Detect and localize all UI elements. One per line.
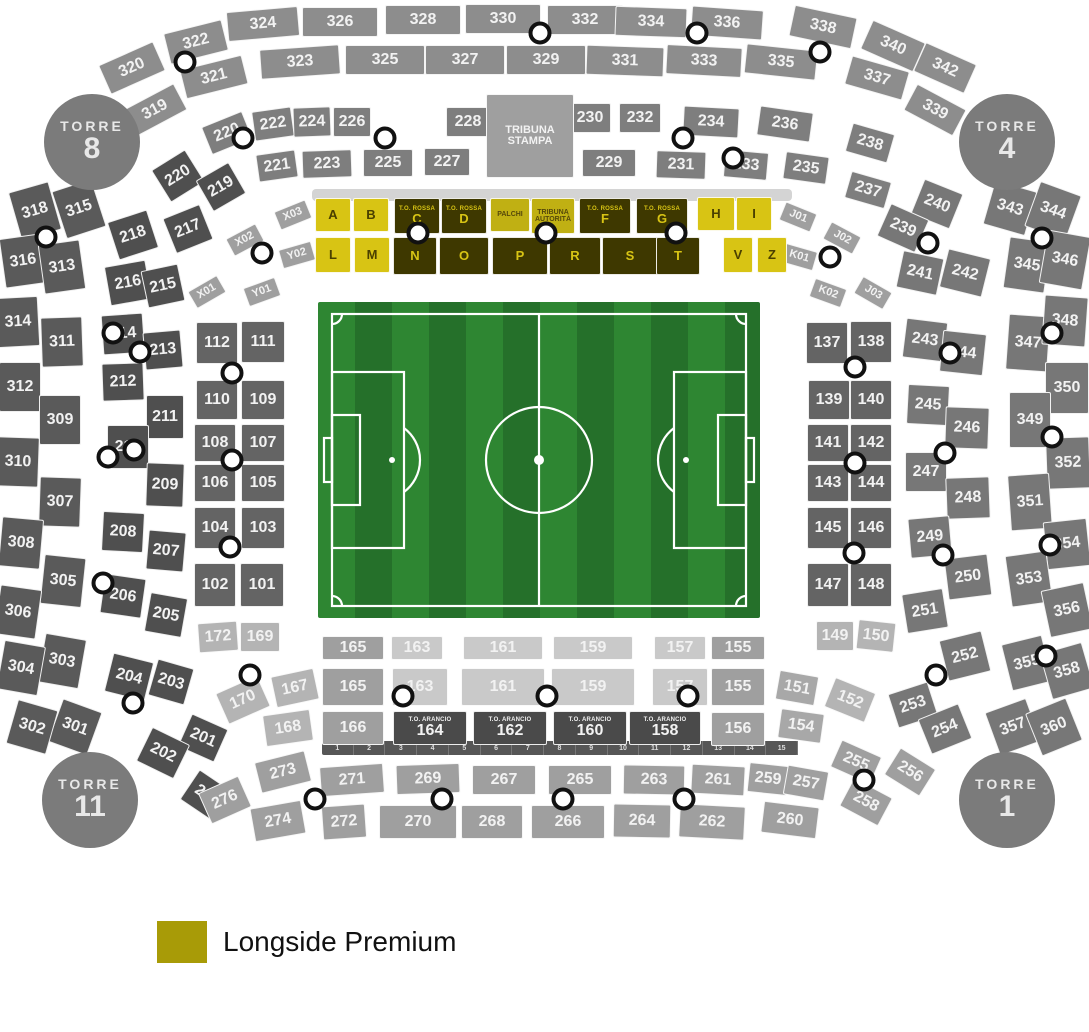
section-f[interactable]: T.O. ROSSAF: [579, 198, 631, 234]
section-161[interactable]: 161: [463, 636, 543, 660]
section-label: 228: [455, 114, 482, 130]
section-232[interactable]: 232: [619, 103, 661, 133]
vomitory-marker: [552, 788, 575, 811]
section-212[interactable]: 212: [101, 362, 144, 401]
section-label: 109: [250, 392, 277, 408]
section-148[interactable]: 148: [850, 563, 892, 607]
section-label: 205: [151, 605, 180, 626]
section-label: 208: [109, 523, 137, 541]
vomitory-marker: [665, 222, 688, 245]
section-label: 227: [434, 154, 461, 170]
section-label: 252: [950, 645, 980, 667]
section-261[interactable]: 261: [690, 764, 745, 797]
section-159[interactable]: 159: [553, 636, 633, 660]
section-label: 360: [1039, 714, 1070, 739]
section-label: 311: [49, 333, 75, 350]
vomitory-marker: [129, 341, 152, 364]
section-312[interactable]: 312: [0, 362, 41, 412]
section-161[interactable]: 161: [461, 668, 545, 706]
section-110[interactable]: 110: [196, 380, 238, 420]
section-151[interactable]: 151: [775, 670, 820, 706]
section-label: 207: [152, 542, 180, 561]
section-172[interactable]: 172: [197, 621, 239, 654]
section-105[interactable]: 105: [241, 464, 285, 502]
section-label: 162: [497, 723, 524, 739]
section-label: 147: [815, 577, 842, 593]
vomitory-marker: [917, 232, 940, 255]
section-107[interactable]: 107: [241, 424, 285, 462]
football-pitch: [318, 302, 760, 618]
section-label: 347: [1014, 334, 1042, 352]
section-223[interactable]: 223: [302, 149, 353, 179]
section-o[interactable]: O: [439, 237, 489, 275]
section-label: 260: [776, 810, 804, 829]
section-163[interactable]: 163: [391, 636, 443, 660]
section-label: 262: [698, 813, 726, 831]
vomitory-marker: [932, 544, 955, 567]
section-217[interactable]: 217: [162, 204, 213, 254]
section-label: 346: [1050, 250, 1079, 271]
section-label: 110: [204, 392, 230, 408]
section-215[interactable]: 215: [140, 263, 185, 308]
section-label: 345: [1013, 255, 1042, 275]
section-label: S: [626, 249, 635, 262]
section-360[interactable]: 360: [1025, 697, 1083, 756]
section-241[interactable]: 241: [896, 250, 945, 296]
section-143[interactable]: 143: [807, 464, 849, 502]
section-266[interactable]: 266: [531, 805, 605, 839]
section-label: 158: [652, 723, 679, 739]
legend-color-swatch: [157, 921, 207, 963]
section-label: 206: [109, 586, 138, 606]
section-264[interactable]: 264: [613, 803, 672, 838]
section-label: 349: [1017, 412, 1044, 428]
section-d[interactable]: T.O. ROSSAD: [441, 198, 487, 234]
section-label: 344: [1038, 199, 1069, 223]
section-label: 327: [452, 52, 479, 68]
section-label: K01: [788, 249, 810, 265]
section-label: 220: [162, 162, 193, 190]
section-301[interactable]: 301: [47, 698, 102, 756]
section-156[interactable]: 156: [711, 712, 765, 746]
section-v[interactable]: V: [723, 237, 753, 273]
section-314[interactable]: 314: [0, 296, 40, 348]
section-label: 256: [894, 758, 925, 786]
section-310[interactable]: 310: [0, 436, 40, 487]
section-165[interactable]: 165: [322, 636, 384, 660]
section-303[interactable]: 303: [37, 633, 87, 690]
section-309[interactable]: 309: [39, 395, 81, 445]
section-145[interactable]: 145: [807, 507, 849, 549]
section-label: 265: [567, 772, 594, 788]
section-label: 172: [204, 628, 232, 646]
section-112[interactable]: 112: [196, 322, 238, 364]
section-238[interactable]: 238: [845, 123, 896, 164]
vomitory-marker: [819, 246, 842, 269]
section-b[interactable]: B: [353, 198, 389, 232]
section-label: 335: [767, 52, 795, 71]
section-label: 234: [697, 113, 725, 131]
section-label: 313: [48, 257, 77, 277]
section-label: 270: [405, 814, 432, 830]
section-111[interactable]: 111: [241, 321, 285, 363]
section-157[interactable]: 157: [654, 636, 706, 660]
vomitory-marker: [844, 356, 867, 379]
vomitory-marker: [809, 41, 832, 64]
section-242[interactable]: 242: [939, 248, 991, 297]
section-237[interactable]: 237: [844, 171, 892, 209]
section-label: 251: [911, 601, 940, 621]
section-label: 352: [1054, 454, 1081, 471]
vomitory-marker: [239, 664, 262, 687]
section-l[interactable]: L: [315, 237, 351, 273]
section-label: T: [674, 249, 682, 262]
section-323[interactable]: 323: [259, 44, 341, 80]
section-160[interactable]: T.O. ARANCIO160: [553, 711, 627, 745]
tower-number: 11: [74, 790, 106, 824]
section-label: 315: [64, 197, 94, 221]
section-label: 339: [919, 97, 950, 124]
section-label: 243: [911, 330, 939, 349]
section-label: 303: [47, 651, 76, 672]
section-150[interactable]: 150: [856, 619, 897, 653]
section-329[interactable]: 329: [506, 45, 586, 75]
section-236[interactable]: 236: [756, 105, 814, 142]
section-label: 224: [298, 113, 325, 130]
section-139[interactable]: 139: [808, 380, 850, 420]
section-109[interactable]: 109: [241, 380, 285, 420]
section-272[interactable]: 272: [321, 804, 367, 841]
section-label: 238: [855, 131, 885, 154]
section-label: 148: [858, 577, 885, 593]
section-334[interactable]: 334: [614, 6, 687, 38]
section-label: 338: [808, 16, 838, 38]
section-label: 261: [704, 771, 732, 789]
section-label: 248: [954, 489, 981, 506]
section-label: 235: [792, 158, 821, 178]
section-label: 334: [637, 13, 664, 30]
section-167[interactable]: 167: [270, 668, 320, 708]
section-label: 333: [690, 52, 718, 70]
section-165[interactable]: 165: [322, 668, 384, 706]
section-169[interactable]: 169: [240, 622, 280, 652]
section-218[interactable]: 218: [107, 209, 159, 260]
section-154[interactable]: 154: [777, 708, 825, 744]
section-305[interactable]: 305: [40, 554, 87, 608]
section-label: 329: [533, 52, 560, 68]
section-label: 106: [202, 475, 229, 491]
section-label: 271: [338, 771, 366, 789]
section-339[interactable]: 339: [903, 84, 967, 137]
section-149[interactable]: 149: [816, 621, 854, 651]
section-101[interactable]: 101: [240, 563, 284, 607]
section-label: 325: [372, 52, 399, 68]
vomitory-marker: [853, 769, 876, 792]
section-label: 140: [858, 392, 885, 408]
section-label: Z: [768, 248, 776, 261]
section-h[interactable]: H: [697, 197, 735, 231]
section-label: 236: [771, 114, 800, 134]
section-208[interactable]: 208: [101, 511, 145, 553]
section-label: 223: [313, 155, 340, 172]
section-256[interactable]: 256: [884, 747, 937, 796]
section-label: 305: [49, 571, 77, 590]
vomitory-marker: [1039, 534, 1062, 557]
section-label: K02: [817, 284, 840, 301]
section-328[interactable]: 328: [385, 5, 461, 35]
tower-4: TORRE4: [959, 94, 1055, 190]
section-label: 326: [327, 14, 354, 30]
section-label: 343: [995, 196, 1025, 219]
section-137[interactable]: 137: [806, 322, 848, 364]
section-label: 250: [954, 567, 982, 586]
section-155[interactable]: 155: [711, 636, 765, 660]
section-140[interactable]: 140: [850, 380, 892, 420]
section-x03[interactable]: X03: [273, 199, 312, 230]
section-label: 321: [199, 66, 229, 88]
section-248[interactable]: 248: [945, 476, 990, 520]
section-267[interactable]: 267: [472, 765, 536, 795]
section-251[interactable]: 251: [901, 588, 949, 634]
section-211[interactable]: 211: [146, 395, 184, 439]
section-label: 166: [340, 720, 367, 736]
section-label: 239: [887, 215, 918, 241]
section-label: 245: [914, 396, 942, 414]
section-168[interactable]: 168: [262, 709, 314, 747]
section-label: 145: [815, 520, 842, 536]
vomitory-marker: [304, 788, 327, 811]
section-152[interactable]: 152: [824, 677, 877, 723]
section-141[interactable]: 141: [807, 424, 849, 462]
stadium-seat-map: 123456789101112131415 Longside Premium 3…: [0, 0, 1089, 1032]
section-label: 164: [417, 723, 444, 739]
section-231[interactable]: 231: [656, 150, 707, 180]
section-y01[interactable]: Y01: [243, 277, 282, 307]
section-label: P: [516, 249, 525, 262]
section-306[interactable]: 306: [0, 584, 42, 639]
section-320[interactable]: 320: [98, 41, 166, 95]
section-label: 137: [814, 335, 841, 351]
section-label: 308: [7, 534, 35, 553]
section-label: 274: [263, 811, 292, 832]
section-label: J03: [862, 284, 884, 303]
section-label: 324: [249, 15, 277, 34]
section-j03[interactable]: J03: [853, 276, 892, 310]
section-274[interactable]: 274: [249, 800, 306, 843]
section-label: 112: [204, 335, 230, 351]
section-label: TRIBUNA: [537, 209, 569, 216]
section-324[interactable]: 324: [226, 6, 300, 42]
section-332[interactable]: 332: [547, 5, 623, 35]
section-label: 143: [815, 475, 842, 491]
section-label: 211: [152, 409, 178, 425]
section-z[interactable]: Z: [757, 237, 787, 273]
section-label: 204: [114, 666, 144, 688]
vomitory-marker: [925, 664, 948, 687]
section-label: 356: [1052, 599, 1082, 621]
section-147[interactable]: 147: [807, 563, 849, 607]
section-label: 217: [173, 216, 204, 241]
vomitory-marker: [221, 362, 244, 385]
vomitory-marker: [536, 685, 559, 708]
section-j01[interactable]: J01: [778, 201, 817, 232]
section-label: 342: [929, 55, 960, 81]
section-label: 246: [953, 419, 980, 436]
section-label: 160: [577, 723, 604, 739]
section-label: 268: [479, 814, 506, 830]
tower-number: 8: [84, 132, 101, 166]
section-label: 168: [274, 718, 303, 738]
section-label: 201: [187, 725, 218, 751]
section-label: 247: [913, 464, 940, 480]
section-label: 161: [490, 679, 517, 695]
vomitory-marker: [92, 572, 115, 595]
section-label: 231: [667, 156, 694, 173]
section-350[interactable]: 350: [1045, 362, 1089, 414]
section-s[interactable]: S: [602, 237, 658, 275]
section-327[interactable]: 327: [425, 45, 505, 75]
section-335[interactable]: 335: [744, 43, 819, 80]
section-a[interactable]: A: [315, 198, 351, 232]
section-245[interactable]: 245: [906, 384, 950, 426]
section-222[interactable]: 222: [251, 106, 295, 141]
section-label: 213: [149, 341, 177, 360]
section-label: 203: [156, 670, 186, 693]
section-label: F: [601, 212, 609, 225]
section-159[interactable]: 159: [551, 668, 635, 706]
vomitory-marker: [221, 449, 244, 472]
section-r[interactable]: R: [549, 237, 601, 275]
section-label: 103: [250, 520, 277, 536]
section-311[interactable]: 311: [40, 316, 84, 367]
section-m[interactable]: M: [354, 237, 390, 273]
section-207[interactable]: 207: [145, 529, 186, 572]
section-273[interactable]: 273: [254, 750, 312, 794]
section-325[interactable]: 325: [345, 45, 425, 75]
section-257[interactable]: 257: [783, 765, 830, 802]
section-label: 163: [404, 640, 431, 656]
section-x01[interactable]: X01: [187, 275, 226, 309]
section-102[interactable]: 102: [194, 563, 236, 607]
section-label: 350: [1054, 380, 1081, 396]
section-158[interactable]: T.O. ARANCIO158: [629, 711, 701, 745]
section-162[interactable]: T.O. ARANCIO162: [473, 711, 547, 745]
section-label: 155: [725, 679, 752, 695]
vomitory-marker: [431, 788, 454, 811]
section-103[interactable]: 103: [241, 507, 285, 549]
section-308[interactable]: 308: [0, 516, 44, 569]
section-228[interactable]: 228: [446, 107, 490, 137]
section-155[interactable]: 155: [711, 668, 765, 706]
section-269[interactable]: 269: [395, 763, 460, 795]
section-label: 149: [822, 628, 849, 644]
vomitory-marker: [677, 685, 700, 708]
section-203[interactable]: 203: [147, 658, 194, 705]
section-220[interactable]: 220: [151, 149, 205, 202]
section-label: 269: [414, 770, 441, 787]
section-label-line2: STAMPA: [508, 136, 553, 147]
section-label: 323: [286, 53, 314, 71]
section-label: 111: [251, 334, 276, 350]
section-label: 302: [17, 715, 47, 738]
vomitory-marker: [1035, 645, 1058, 668]
section-label: 332: [572, 12, 599, 28]
section-label: 259: [754, 769, 782, 788]
section-y02[interactable]: Y02: [278, 241, 316, 270]
section-230[interactable]: 230: [569, 103, 611, 133]
vomitory-marker: [843, 542, 866, 565]
section-227[interactable]: 227: [424, 148, 470, 176]
section-326[interactable]: 326: [302, 7, 378, 37]
section-219[interactable]: 219: [196, 162, 247, 212]
section-209[interactable]: 209: [145, 462, 185, 507]
section-label: 165: [340, 679, 367, 695]
section-221[interactable]: 221: [255, 149, 299, 182]
section-label: 304: [6, 658, 35, 679]
section-label: 242: [950, 262, 980, 284]
section-label: 161: [490, 640, 517, 656]
section-225[interactable]: 225: [363, 149, 413, 177]
section-palchi[interactable]: PALCHI: [490, 198, 530, 232]
section-268[interactable]: 268: [461, 805, 523, 839]
legend: Longside Premium: [157, 921, 456, 963]
vomitory-marker: [374, 127, 397, 150]
section-label: 257: [791, 773, 820, 794]
section-label: 272: [330, 813, 358, 831]
section-label: 331: [611, 52, 638, 69]
section-270[interactable]: 270: [379, 805, 457, 839]
section-164[interactable]: T.O. ARANCIO164: [393, 711, 467, 745]
section-k02[interactable]: K02: [809, 278, 848, 308]
seat-block-number: 15: [766, 741, 798, 755]
section-label: 102: [202, 577, 229, 593]
section-label: 263: [641, 772, 668, 789]
section-label: A: [328, 208, 337, 221]
vomitory-marker: [174, 51, 197, 74]
section-333[interactable]: 333: [665, 44, 742, 78]
section-166[interactable]: 166: [322, 711, 384, 745]
vomitory-marker: [97, 446, 120, 469]
section-235[interactable]: 235: [782, 151, 829, 185]
section-271[interactable]: 271: [319, 763, 385, 797]
section-205[interactable]: 205: [144, 592, 188, 638]
section-label: 319: [139, 97, 170, 124]
section-i[interactable]: I: [736, 197, 772, 231]
section-label: 328: [410, 12, 437, 28]
section-tribuna[interactable]: TRIBUNASTAMPA: [486, 94, 574, 178]
section-224[interactable]: 224: [292, 106, 331, 137]
vomitory-marker: [686, 22, 709, 45]
section-260[interactable]: 260: [760, 801, 819, 840]
section-label: 107: [250, 435, 277, 451]
section-226[interactable]: 226: [333, 107, 371, 137]
section-label: 151: [782, 678, 811, 699]
section-356[interactable]: 356: [1040, 582, 1089, 638]
section-302[interactable]: 302: [5, 699, 58, 755]
section-229[interactable]: 229: [582, 149, 636, 177]
section-304[interactable]: 304: [0, 640, 46, 697]
section-label: I: [752, 207, 756, 220]
section-331[interactable]: 331: [586, 45, 665, 78]
section-label: 138: [858, 334, 885, 350]
tower-8: TORRE8: [44, 94, 140, 190]
section-label: 226: [339, 114, 366, 130]
section-307[interactable]: 307: [38, 476, 82, 527]
section-label: 159: [580, 679, 607, 695]
section-label: 266: [555, 814, 582, 830]
section-label: B: [366, 208, 375, 221]
vomitory-marker: [1041, 322, 1064, 345]
